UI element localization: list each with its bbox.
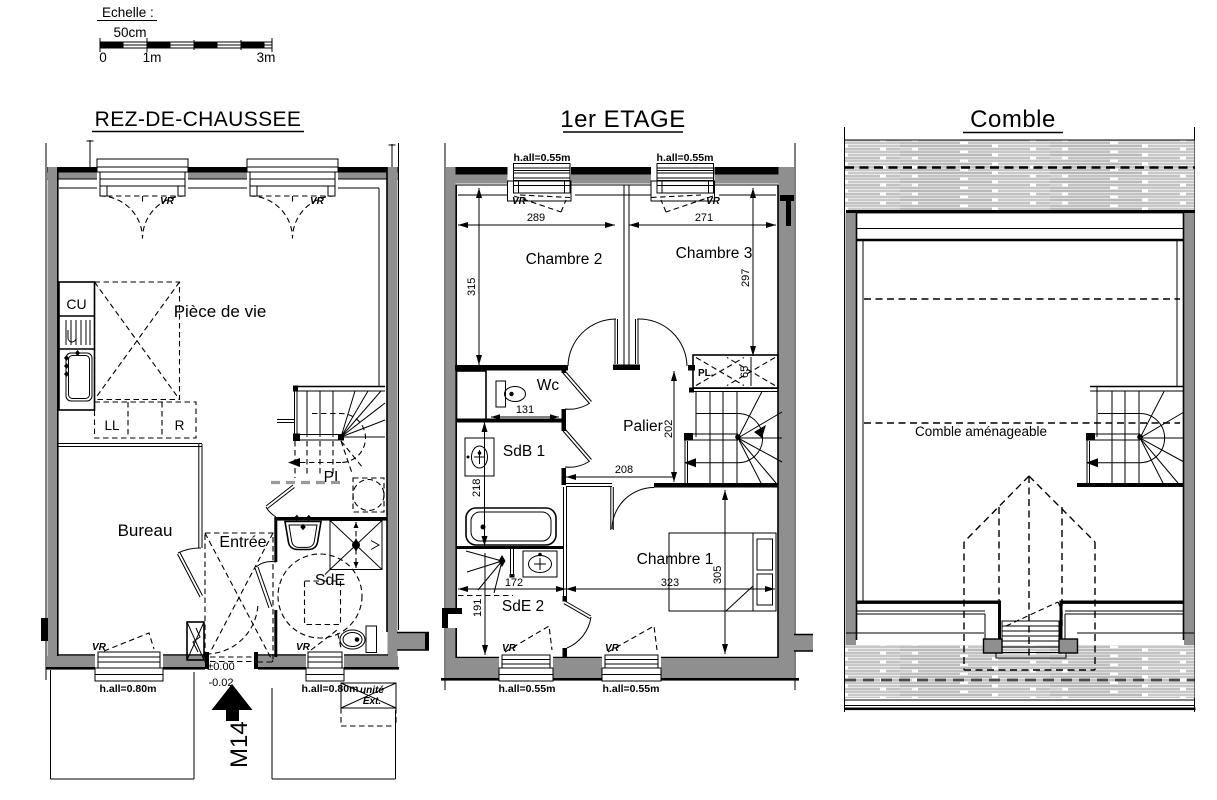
svg-text:50cm: 50cm — [113, 25, 146, 40]
svg-text:Chambre 3: Chambre 3 — [676, 245, 753, 262]
svg-text:REZ-DE-CHAUSSEE: REZ-DE-CHAUSSEE — [95, 108, 302, 131]
svg-text:h.all=0.55m: h.all=0.55m — [657, 152, 714, 164]
svg-text:±0.00: ±0.00 — [207, 661, 234, 673]
svg-text:131: 131 — [516, 404, 534, 416]
svg-text:3m: 3m — [257, 50, 276, 65]
svg-text:305: 305 — [712, 566, 724, 584]
svg-text:Comble aménageable: Comble aménageable — [915, 424, 1047, 439]
svg-text:h.all=0.80m: h.all=0.80m — [302, 683, 359, 695]
svg-text:191: 191 — [472, 599, 484, 617]
svg-text:unité: unité — [360, 685, 384, 696]
svg-text:Comble: Comble — [970, 106, 1056, 133]
svg-text:VR: VR — [512, 196, 527, 207]
svg-text:1m: 1m — [143, 50, 162, 65]
svg-text:h.all=0.80m: h.all=0.80m — [100, 683, 157, 695]
svg-text:VR: VR — [605, 643, 620, 654]
svg-text:SdB 1: SdB 1 — [503, 443, 545, 460]
svg-text:172: 172 — [505, 577, 523, 589]
svg-text:VR: VR — [160, 196, 175, 207]
svg-text:PL.: PL. — [698, 368, 714, 379]
svg-text:h.all=0.55m: h.all=0.55m — [499, 683, 556, 695]
svg-text:Chambre 1: Chambre 1 — [637, 551, 714, 568]
svg-text:Entrée: Entrée — [219, 534, 266, 551]
svg-text:Chambre 2: Chambre 2 — [526, 251, 603, 268]
svg-text:h.all=0.55m: h.all=0.55m — [603, 683, 660, 695]
svg-text:CU: CU — [66, 296, 86, 312]
svg-text:Wc: Wc — [537, 377, 560, 394]
svg-text:65: 65 — [739, 366, 751, 378]
svg-text:1er ETAGE: 1er ETAGE — [560, 106, 685, 133]
svg-text:h.all=0.55m: h.all=0.55m — [514, 152, 571, 164]
svg-text:VR: VR — [310, 196, 325, 207]
svg-text:208: 208 — [615, 464, 633, 476]
svg-text:Pièce de vie: Pièce de vie — [174, 302, 267, 321]
svg-text:SdE 2: SdE 2 — [502, 598, 544, 615]
svg-text:M14: M14 — [226, 721, 253, 768]
svg-text:LL: LL — [104, 418, 120, 433]
svg-text:Bureau: Bureau — [118, 521, 173, 540]
svg-text:Echelle :: Echelle : — [102, 5, 154, 20]
svg-text:VR: VR — [502, 643, 517, 654]
svg-text:323: 323 — [661, 577, 679, 589]
svg-text:218: 218 — [471, 479, 483, 497]
svg-text:Palier: Palier — [623, 418, 663, 435]
svg-text:Ext.: Ext. — [363, 696, 381, 707]
svg-text:R: R — [175, 418, 185, 433]
svg-text:0: 0 — [99, 50, 107, 65]
svg-text:202: 202 — [663, 420, 675, 438]
svg-text:315: 315 — [466, 278, 478, 296]
svg-text:289: 289 — [527, 212, 545, 224]
svg-text:271: 271 — [695, 212, 713, 224]
svg-text:SdE: SdE — [315, 572, 345, 589]
svg-text:297: 297 — [740, 269, 752, 287]
svg-text:VR: VR — [296, 642, 311, 653]
